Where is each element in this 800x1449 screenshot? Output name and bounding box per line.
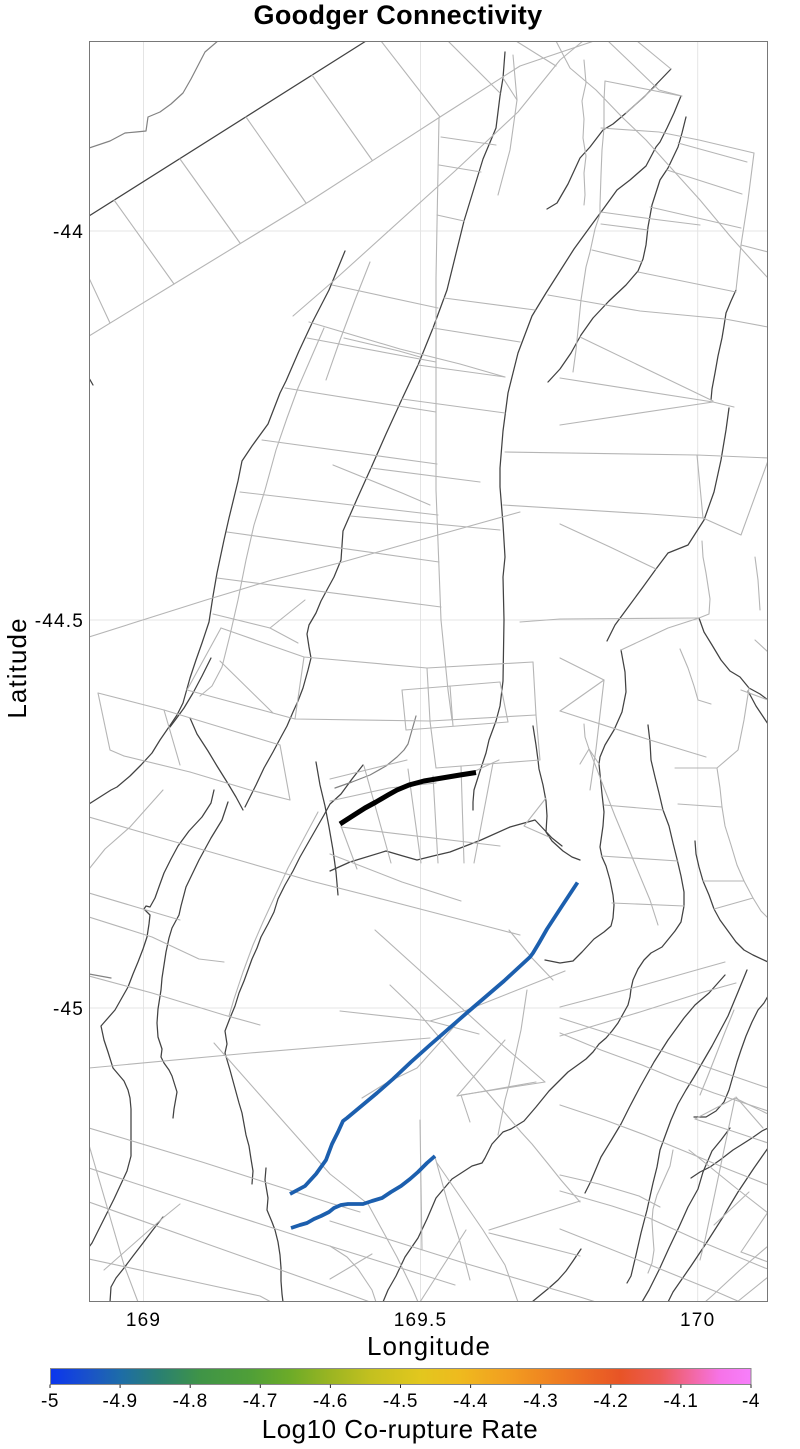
svg-text:Longitude: Longitude [367, 1331, 491, 1361]
svg-text:-44.5: -44.5 [35, 611, 84, 632]
svg-text:-4.8: -4.8 [173, 1391, 208, 1412]
svg-text:170: 170 [680, 1310, 715, 1331]
svg-text:-4.9: -4.9 [103, 1391, 138, 1412]
svg-text:169: 169 [126, 1310, 161, 1331]
svg-text:-5: -5 [41, 1391, 59, 1412]
svg-text:-4.7: -4.7 [243, 1391, 278, 1412]
svg-text:Log10 Co-rupture Rate: Log10 Co-rupture Rate [262, 1414, 538, 1444]
svg-text:-44: -44 [53, 222, 84, 243]
svg-text:-45: -45 [53, 999, 84, 1020]
svg-text:-4.5: -4.5 [383, 1391, 418, 1412]
svg-text:169.5: 169.5 [394, 1310, 448, 1331]
svg-text:-4.6: -4.6 [313, 1391, 348, 1412]
svg-text:Goodger Connectivity: Goodger Connectivity [253, 0, 542, 30]
svg-text:-4.3: -4.3 [523, 1391, 558, 1412]
svg-text:-4.4: -4.4 [453, 1391, 488, 1412]
svg-text:-4.1: -4.1 [663, 1391, 698, 1412]
svg-text:-4.2: -4.2 [593, 1391, 628, 1412]
svg-text:-4: -4 [742, 1391, 760, 1412]
svg-text:Latitude: Latitude [2, 617, 32, 718]
